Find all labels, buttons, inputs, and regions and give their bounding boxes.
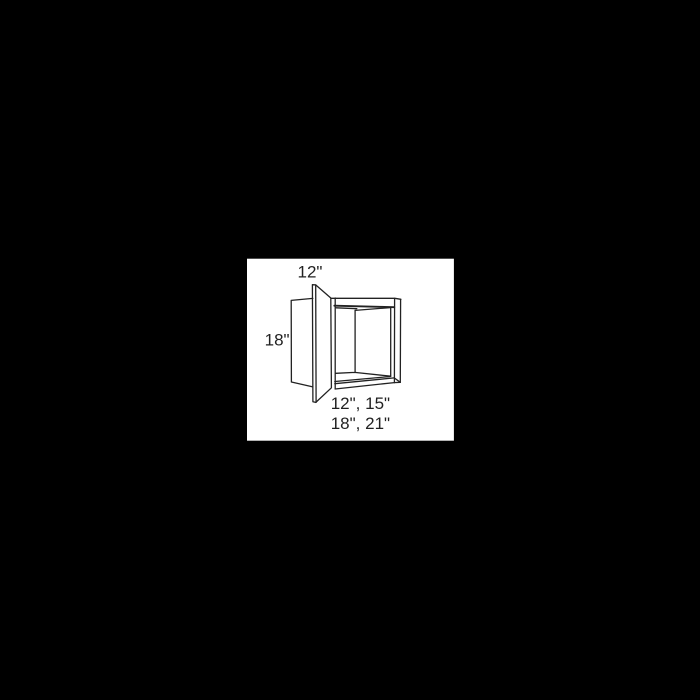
- svg-text:18", 21": 18", 21": [331, 414, 390, 433]
- svg-text:12", 15": 12", 15": [331, 394, 390, 413]
- svg-text:12": 12": [298, 262, 323, 281]
- svg-text:18": 18": [265, 330, 290, 349]
